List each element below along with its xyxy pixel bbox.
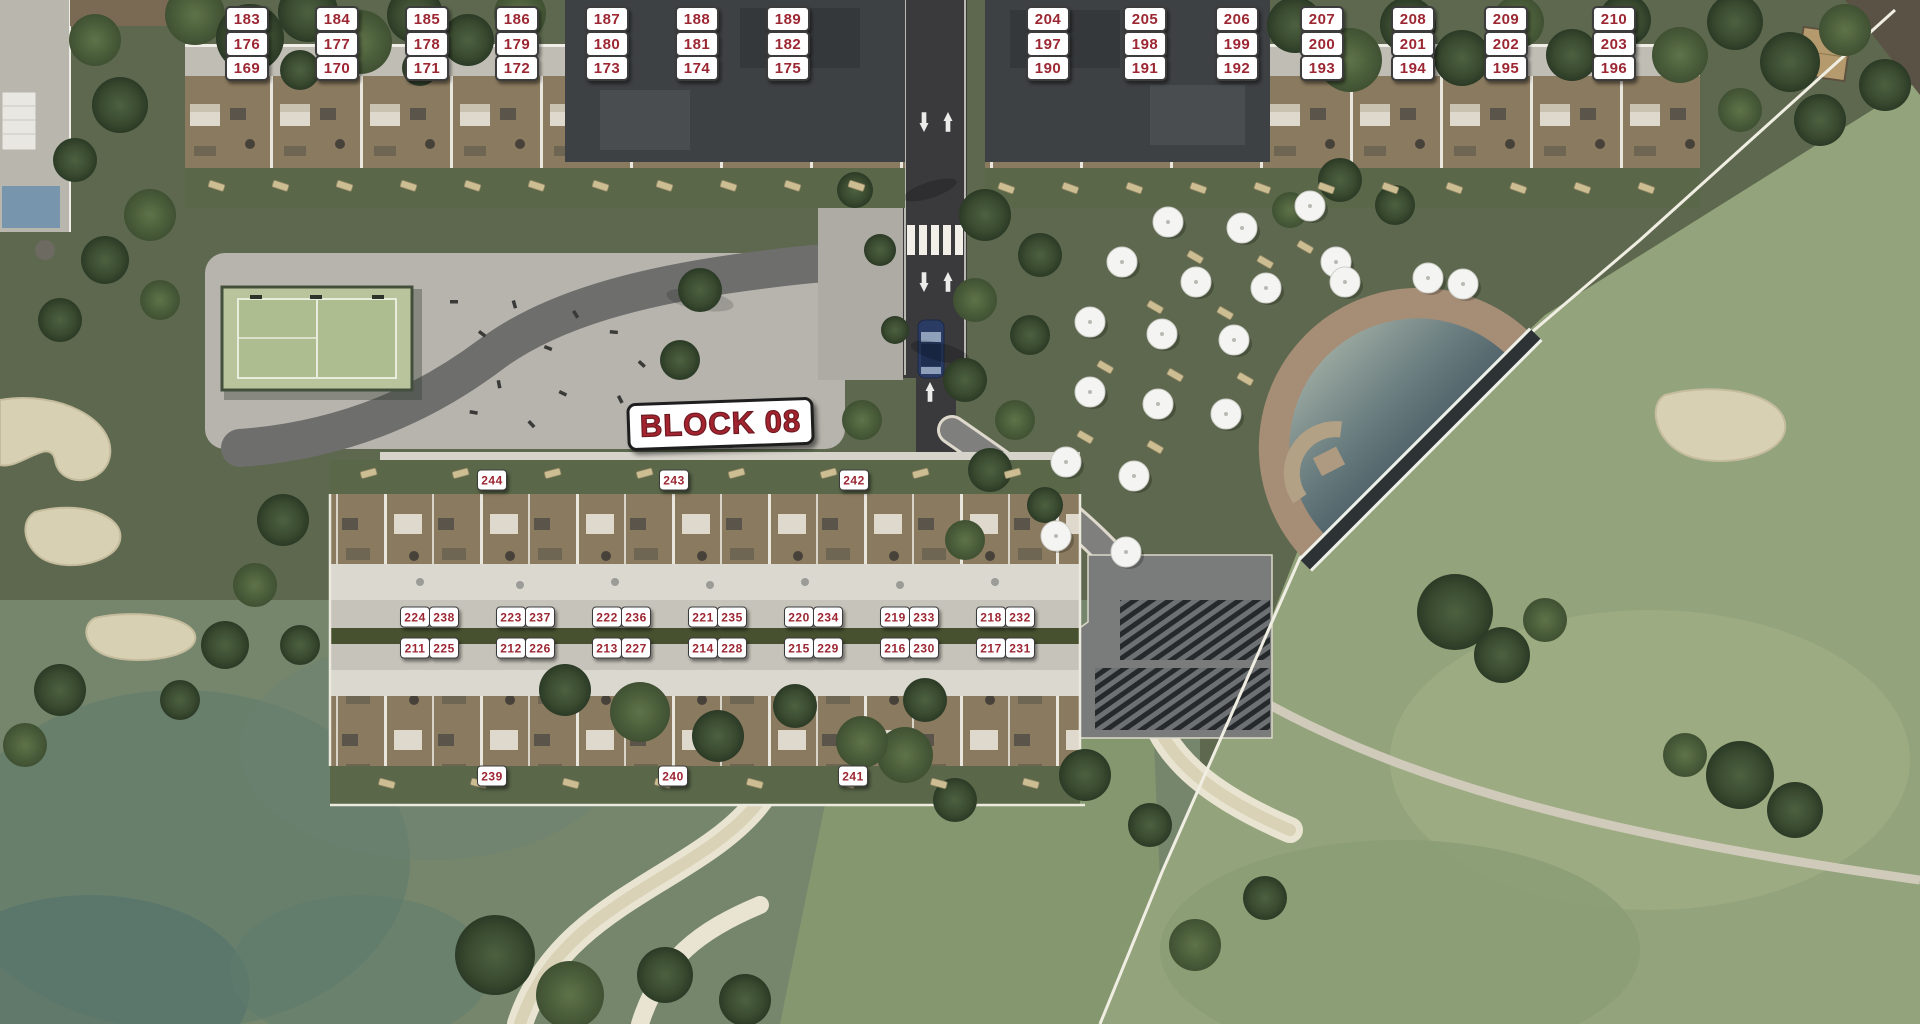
unit-label-177[interactable]: 177: [315, 31, 359, 57]
unit-label-218[interactable]: 218: [976, 607, 1006, 628]
unit-label-235[interactable]: 235: [717, 607, 747, 628]
unit-label-197[interactable]: 197: [1026, 31, 1070, 57]
unit-label-228[interactable]: 228: [717, 638, 747, 659]
unit-label-200[interactable]: 200: [1300, 31, 1344, 57]
unit-label-181[interactable]: 181: [675, 31, 719, 57]
unit-label-209[interactable]: 209: [1484, 6, 1528, 32]
unit-label-192[interactable]: 192: [1215, 55, 1259, 81]
unit-label-232[interactable]: 232: [1005, 607, 1035, 628]
unit-label-211[interactable]: 211: [400, 638, 430, 659]
unit-label-176[interactable]: 176: [225, 31, 269, 57]
unit-label-212[interactable]: 212: [496, 638, 526, 659]
unit-label-188[interactable]: 188: [675, 6, 719, 32]
unit-label-230[interactable]: 230: [909, 638, 939, 659]
unit-label-187[interactable]: 187: [585, 6, 629, 32]
unit-label-199[interactable]: 199: [1215, 31, 1259, 57]
unit-label-185[interactable]: 185: [405, 6, 449, 32]
unit-label-198[interactable]: 198: [1123, 31, 1167, 57]
block-08-text: BLOCK 08: [639, 403, 801, 445]
unit-label-173[interactable]: 173: [585, 55, 629, 81]
unit-label-202[interactable]: 202: [1484, 31, 1528, 57]
unit-label-193[interactable]: 193: [1300, 55, 1344, 81]
unit-label-236[interactable]: 236: [621, 607, 651, 628]
unit-label-223[interactable]: 223: [496, 607, 526, 628]
unit-label-189[interactable]: 189: [766, 6, 810, 32]
unit-label-190[interactable]: 190: [1026, 55, 1070, 81]
unit-labels-layer: 1831841851861871881891761771781791801811…: [0, 0, 1920, 1024]
unit-label-182[interactable]: 182: [766, 31, 810, 57]
unit-label-170[interactable]: 170: [315, 55, 359, 81]
unit-label-234[interactable]: 234: [813, 607, 843, 628]
unit-label-207[interactable]: 207: [1300, 6, 1344, 32]
unit-label-224[interactable]: 224: [400, 607, 430, 628]
unit-label-221[interactable]: 221: [688, 607, 718, 628]
unit-label-178[interactable]: 178: [405, 31, 449, 57]
unit-label-172[interactable]: 172: [495, 55, 539, 81]
unit-label-219[interactable]: 219: [880, 607, 910, 628]
unit-label-194[interactable]: 194: [1391, 55, 1435, 81]
unit-label-237[interactable]: 237: [525, 607, 555, 628]
unit-label-242[interactable]: 242: [839, 470, 869, 491]
unit-label-238[interactable]: 238: [429, 607, 459, 628]
unit-label-191[interactable]: 191: [1123, 55, 1167, 81]
unit-label-204[interactable]: 204: [1026, 6, 1070, 32]
unit-label-214[interactable]: 214: [688, 638, 718, 659]
unit-label-183[interactable]: 183: [225, 6, 269, 32]
unit-label-206[interactable]: 206: [1215, 6, 1259, 32]
unit-label-229[interactable]: 229: [813, 638, 843, 659]
unit-label-241[interactable]: 241: [838, 766, 868, 787]
unit-label-226[interactable]: 226: [525, 638, 555, 659]
unit-label-244[interactable]: 244: [477, 470, 507, 491]
unit-label-225[interactable]: 225: [429, 638, 459, 659]
unit-label-233[interactable]: 233: [909, 607, 939, 628]
unit-label-195[interactable]: 195: [1484, 55, 1528, 81]
unit-label-179[interactable]: 179: [495, 31, 539, 57]
unit-label-169[interactable]: 169: [225, 55, 269, 81]
unit-label-216[interactable]: 216: [880, 638, 910, 659]
unit-label-171[interactable]: 171: [405, 55, 449, 81]
unit-label-186[interactable]: 186: [495, 6, 539, 32]
unit-label-240[interactable]: 240: [658, 766, 688, 787]
unit-label-213[interactable]: 213: [592, 638, 622, 659]
unit-label-231[interactable]: 231: [1005, 638, 1035, 659]
unit-label-180[interactable]: 180: [585, 31, 629, 57]
unit-label-196[interactable]: 196: [1592, 55, 1636, 81]
unit-label-243[interactable]: 243: [659, 470, 689, 491]
unit-label-208[interactable]: 208: [1391, 6, 1435, 32]
unit-label-205[interactable]: 205: [1123, 6, 1167, 32]
block-08-label[interactable]: BLOCK 08: [626, 397, 815, 451]
unit-label-184[interactable]: 184: [315, 6, 359, 32]
unit-label-201[interactable]: 201: [1391, 31, 1435, 57]
unit-label-227[interactable]: 227: [621, 638, 651, 659]
unit-label-174[interactable]: 174: [675, 55, 719, 81]
unit-label-239[interactable]: 239: [477, 766, 507, 787]
site-plan: 1831841851861871881891761771781791801811…: [0, 0, 1920, 1024]
unit-label-210[interactable]: 210: [1592, 6, 1636, 32]
unit-label-215[interactable]: 215: [784, 638, 814, 659]
unit-label-175[interactable]: 175: [766, 55, 810, 81]
unit-label-203[interactable]: 203: [1592, 31, 1636, 57]
unit-label-222[interactable]: 222: [592, 607, 622, 628]
unit-label-220[interactable]: 220: [784, 607, 814, 628]
unit-label-217[interactable]: 217: [976, 638, 1006, 659]
